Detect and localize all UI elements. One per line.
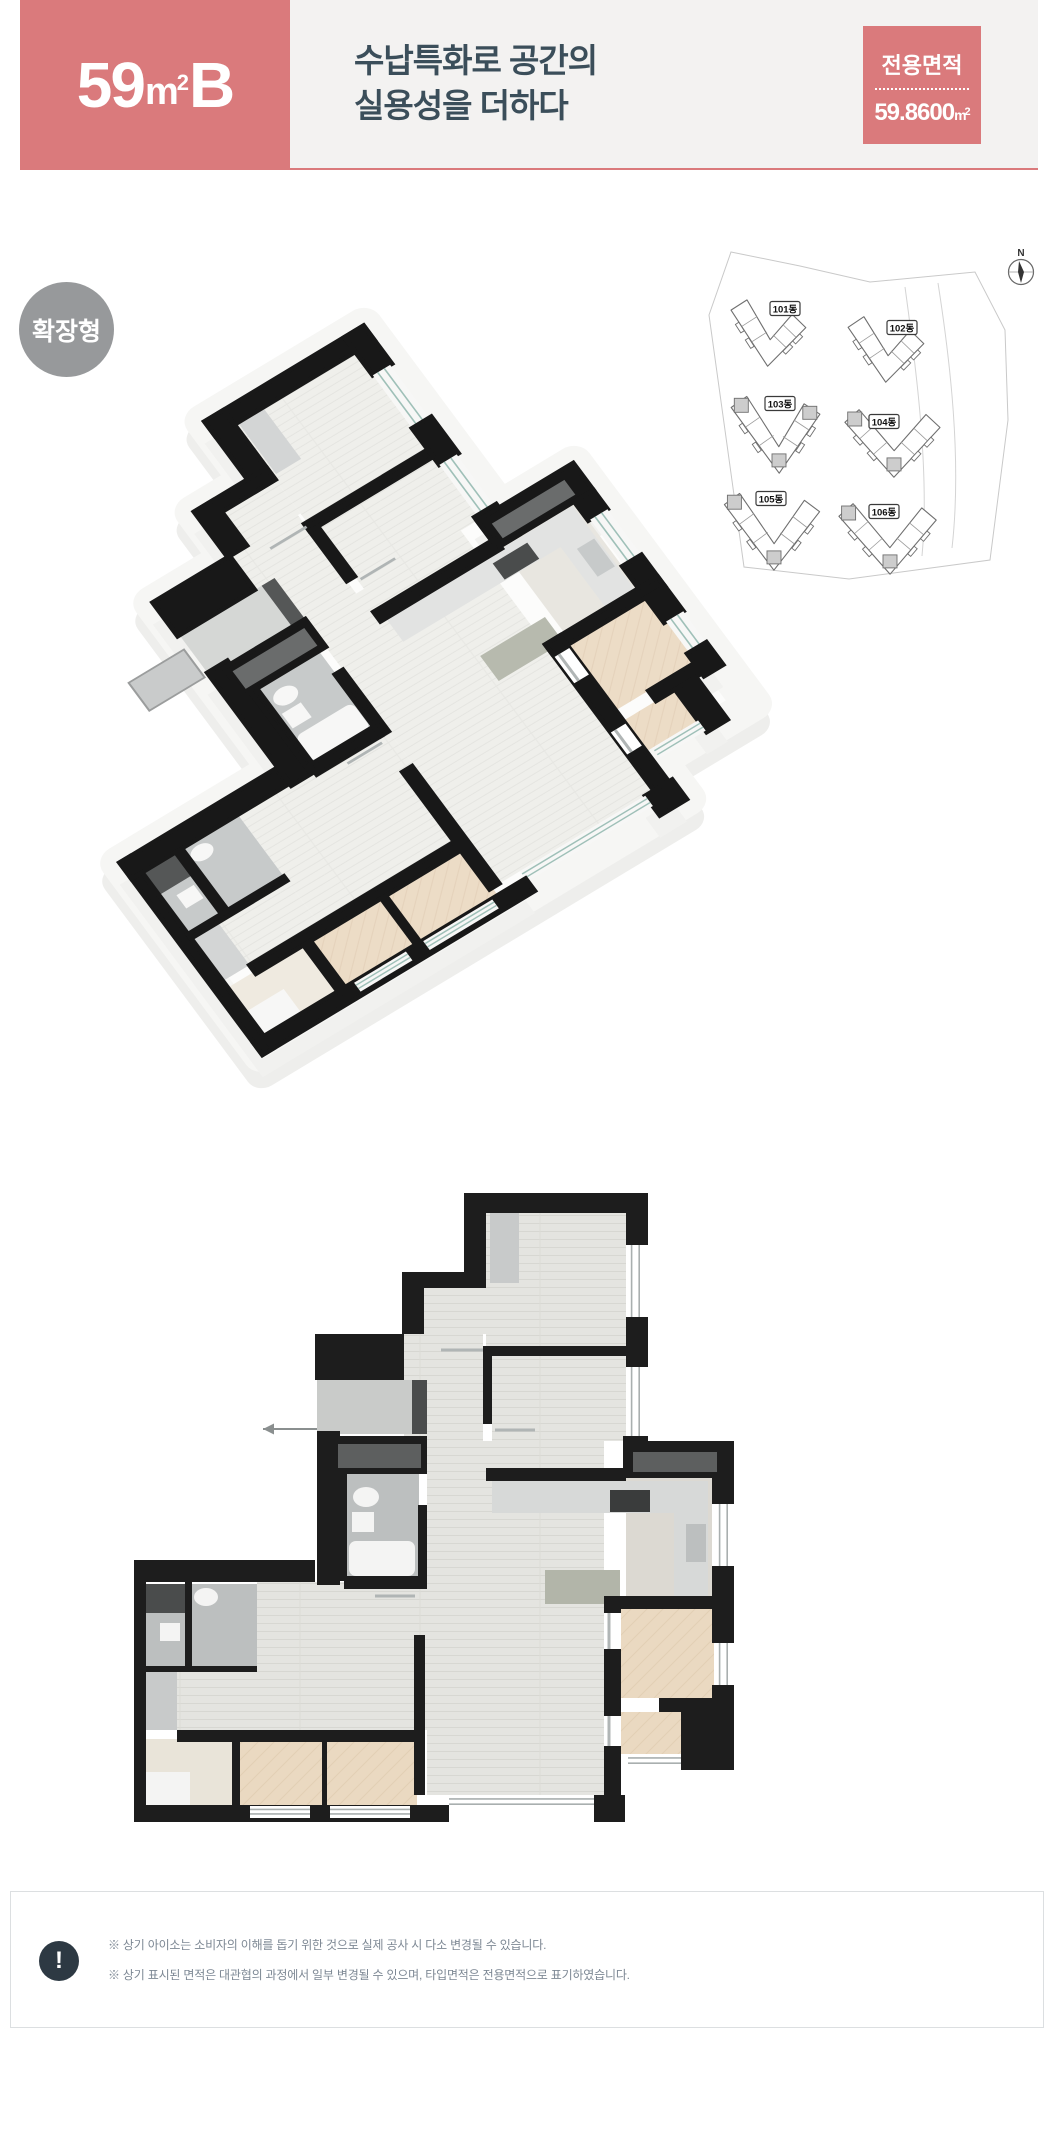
svg-text:N: N xyxy=(1017,248,1024,259)
svg-text:102동: 102동 xyxy=(890,324,915,335)
svg-text:104동: 104동 xyxy=(872,418,897,429)
svg-text:106동: 106동 xyxy=(872,508,897,519)
svg-text:101동: 101동 xyxy=(773,305,798,316)
svg-text:105동: 105동 xyxy=(759,495,784,506)
svg-text:103동: 103동 xyxy=(768,400,793,411)
